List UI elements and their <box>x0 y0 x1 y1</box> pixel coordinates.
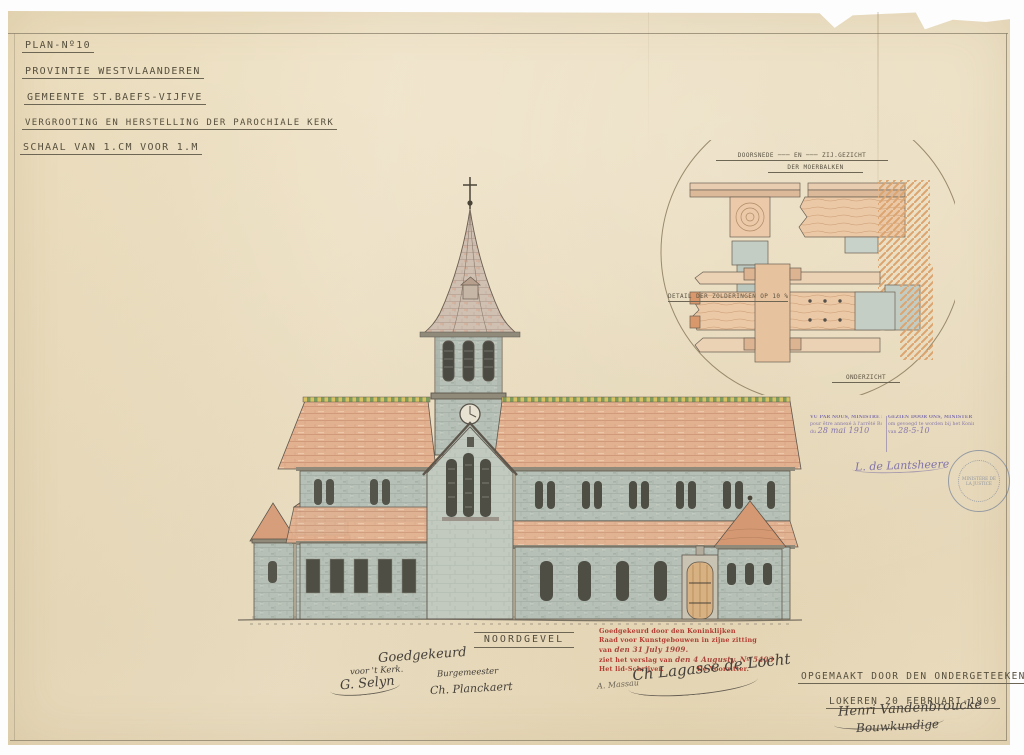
project-title-line: VERGROOTING EN HERSTELLING DER PAROCHIAL… <box>22 118 337 130</box>
tower-clock <box>460 404 480 424</box>
nl-line-1: GEZIEN DOOR ONS, MINISTER VAN JUSTITIE <box>888 415 974 422</box>
scanned-plan-sheet: PLAN-Nº10 PROVINTIE WESTVLAANDEREN GEMEE… <box>0 0 1024 755</box>
cross-finial <box>463 177 477 209</box>
stamp-line-3-print: van <box>599 646 612 654</box>
stamp-line-3-handwritten-date: den 31 July 1909. <box>615 645 689 654</box>
detail-bottom-caption: ONDERZICHT <box>832 374 900 383</box>
top-border-rule <box>8 33 1008 34</box>
stamp-french-column: VU PAR NOUS, MINISTRE DE LA JUSTICE pour… <box>810 415 882 437</box>
fr-line-3: du 28 mai 1910 <box>810 428 882 437</box>
nl-line-3-prefix: van <box>888 430 897 435</box>
stamp-line-1: Goedgekeurd door den Koninklijken <box>599 627 769 636</box>
church-elevation-drawing <box>230 165 810 635</box>
fr-handwritten-date: 28 mai 1910 <box>818 426 870 435</box>
right-border-rule <box>1006 33 1007 741</box>
fr-line-1: VU PAR NOUS, MINISTRE DE LA JUSTICE <box>810 415 882 422</box>
stamp-dutch-column: GEZIEN DOOR ONS, MINISTER VAN JUSTITIE o… <box>888 415 974 437</box>
detail-heading: DOORSNEDE ─── EN ─── ZIJ.GEZICHT <box>716 152 888 161</box>
left-border-rule <box>14 33 15 740</box>
stamp-line-2: Raad voor Kunstgebouwen in zijne zitting <box>599 636 769 645</box>
left-nave-block <box>278 397 436 619</box>
entrance-door <box>682 546 718 619</box>
round-seal-text: MINISTÈRE DE LA JUSTICE <box>958 460 1000 502</box>
fold-crease-2 <box>648 12 649 152</box>
gemeente-line: GEMEENTE ST.BAEFS-VIJFVE <box>24 92 206 105</box>
province-line: PROVINTIE WESTVLAANDEREN <box>22 66 204 79</box>
nl-line-3: van 28-5-10 <box>888 428 974 437</box>
bottom-border-rule <box>10 740 1006 741</box>
ministry-of-justice-stamp: VU PAR NOUS, MINISTRE DE LA JUSTICE pour… <box>810 415 980 437</box>
scale-line: SCHAAL VAN 1.CM VOOR 1.M <box>20 142 202 155</box>
stamp-divider <box>886 416 887 452</box>
statement-line-1: OPGEMAAKT DOOR DEN ONDERGETEEKENDE <box>798 671 1024 684</box>
plan-number: PLAN-Nº10 <box>22 40 94 53</box>
nl-handwritten-date: 28-5-10 <box>898 426 930 435</box>
fr-line-3-prefix: du <box>810 430 816 435</box>
belfry-louvre-windows <box>443 341 494 381</box>
round-ministry-seal: MINISTÈRE DE LA JUSTICE <box>948 450 1010 512</box>
gable-lancet-windows <box>446 453 491 517</box>
elevation-caption: NOORDGEVEL <box>474 632 574 648</box>
spire <box>420 177 520 337</box>
